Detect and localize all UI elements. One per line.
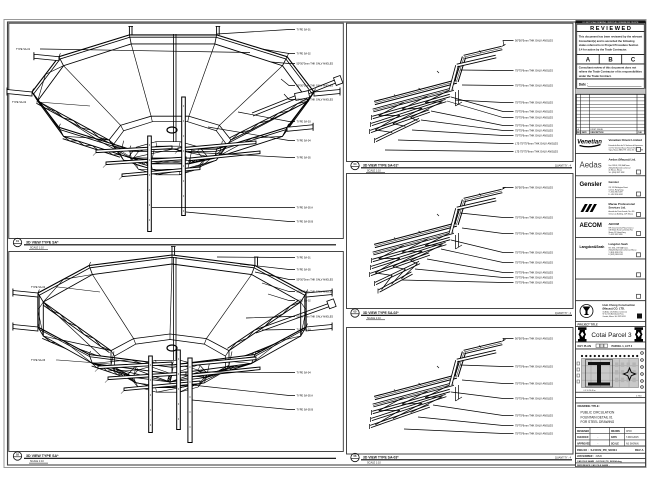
svg-text:C: C bbox=[631, 58, 636, 64]
svg-text:AECOM: AECOM bbox=[580, 223, 602, 229]
svg-text:75*75*6mm THK GALV ANGLES: 75*75*6mm THK GALV ANGLES bbox=[515, 101, 553, 105]
svg-text:FOUNTAIN DETAIL 01: FOUNTAIN DETAIL 01 bbox=[581, 415, 613, 419]
svg-text:75*75*6mm THK GALV ANGLES: 75*75*6mm THK GALV ANGLES bbox=[515, 251, 553, 255]
svg-text:JOB NUMBER :: JOB NUMBER : bbox=[577, 456, 594, 458]
svg-text:Langdon&Seah: Langdon&Seah bbox=[580, 245, 605, 249]
svg-text:F: +852 2810 6992: F: +852 2810 6992 bbox=[609, 194, 623, 196]
svg-text:KEY PLAN: KEY PLAN bbox=[578, 344, 592, 348]
svg-text:TYPE SA-05 B: TYPE SA-05 B bbox=[297, 221, 314, 224]
svg-text:(Macau) CO. LTD.: (Macau) CO. LTD. bbox=[603, 307, 625, 311]
svg-text:75*75*6mm THK GALV ANGLES: 75*75*6mm THK GALV ANGLES bbox=[515, 84, 553, 88]
svg-text:DWG NO :: DWG NO : bbox=[577, 449, 589, 452]
svg-text:75*75*6mm THK GALV ANGLES: 75*75*6mm THK GALV ANGLES bbox=[515, 281, 553, 285]
svg-text:50*50*5mm THK GALV ANGLES: 50*50*5mm THK GALV ANGLES bbox=[297, 85, 334, 88]
svg-text:75*75*6mm THK GALV ANGLES: 75*75*6mm THK GALV ANGLES bbox=[515, 232, 553, 236]
svg-text:QUANTITY : 4: QUANTITY : 4 bbox=[555, 312, 572, 315]
svg-text:T: +852 3922 9000: T: +852 3922 9000 bbox=[609, 234, 623, 236]
svg-text:3D VIEW TYPE SA*: 3D VIEW TYPE SA* bbox=[26, 454, 59, 458]
svg-text:75*75*6mm THK GALV ANGLES: 75*75*6mm THK GALV ANGLES bbox=[515, 129, 553, 133]
svg-text:50*50*5mm THK GALV ANGLES: 50*50*5mm THK GALV ANGLES bbox=[297, 99, 334, 102]
svg-text:PARCEL 1, LOT 2: PARCEL 1, LOT 2 bbox=[612, 345, 633, 348]
svg-text:31520: 31520 bbox=[596, 456, 603, 458]
svg-text:75*75*6mm THK GALV ANGLES: 75*75*6mm THK GALV ANGLES bbox=[515, 110, 553, 114]
svg-text:TYPE SA-05: TYPE SA-05 bbox=[297, 157, 312, 160]
svg-text:75*75*6mm THK GALV ANGLES: 75*75*6mm THK GALV ANGLES bbox=[515, 365, 553, 369]
svg-text:R E V I E W E D: R E V I E W E D bbox=[590, 26, 631, 32]
svg-text:TYPE SA-02: TYPE SA-02 bbox=[297, 300, 312, 303]
svg-text:Aedas (Macau) Ltd.: Aedas (Macau) Ltd. bbox=[609, 158, 637, 162]
svg-text:0 5 10 20 40: 0 5 10 20 40 m bbox=[584, 390, 596, 392]
svg-text:DRAWN: DRAWN bbox=[611, 430, 620, 433]
svg-text:DATE: DATE bbox=[611, 436, 618, 439]
svg-text:relieve the Trade Contractor o: relieve the Trade Contractor of its resp… bbox=[579, 70, 643, 74]
svg-text:TYPE SA-04: TYPE SA-04 bbox=[297, 140, 312, 143]
svg-text:China Law Building, 21/F, Maca: China Law Building, 21/F, Macau bbox=[609, 213, 634, 215]
svg-text:50*50*5mm THK GALV ANGLES: 50*50*5mm THK GALV ANGLES bbox=[297, 316, 334, 319]
svg-text:TYPE SA-03: TYPE SA-03 bbox=[297, 329, 312, 332]
svg-text:REFERENCE CAD FILE NAME :: REFERENCE CAD FILE NAME : bbox=[577, 464, 610, 467]
svg-text:CHIO: CHIO bbox=[626, 431, 632, 433]
svg-text:3D VIEW TYPE SA-03*: 3D VIEW TYPE SA-03* bbox=[363, 455, 399, 459]
svg-text:50*50*5mm THK GALV ANGLES: 50*50*5mm THK GALV ANGLES bbox=[515, 337, 553, 341]
svg-text:Date :: Date : bbox=[579, 83, 588, 87]
svg-text:Hsin Chong Construction: Hsin Chong Construction bbox=[603, 303, 636, 307]
svg-text:75*75*6mm THK GALV ANGLES: 75*75*6mm THK GALV ANGLES bbox=[515, 261, 553, 265]
svg-text:QUANTITY : 4: QUANTITY : 4 bbox=[555, 164, 572, 167]
svg-text:75*75*6mm THK GALV ANGLES: 75*75*6mm THK GALV ANGLES bbox=[515, 424, 553, 428]
svg-text:Aedas: Aedas bbox=[580, 161, 602, 170]
svg-text:SCALE 1:10: SCALE 1:10 bbox=[367, 461, 381, 464]
svg-text:Grande, Macau Tel: 2878 6131: Grande, Macau Tel: 2878 6131 bbox=[603, 315, 626, 318]
svg-text:SCALE 1:10: SCALE 1:10 bbox=[367, 317, 381, 320]
svg-text:50*50*5mm THK GALV ANGLES: 50*50*5mm THK GALV ANGLES bbox=[297, 279, 334, 282]
svg-text:75*75*6mm THK GALV ANGLES: 75*75*6mm THK GALV ANGLES bbox=[515, 116, 553, 120]
svg-text:75*75*6mm THK GALV ANGLES: 75*75*6mm THK GALV ANGLES bbox=[515, 69, 553, 73]
svg-text:TYPE SA-03: TYPE SA-03 bbox=[297, 121, 312, 124]
svg-text:under the Trade Contract.: under the Trade Contract. bbox=[579, 74, 612, 78]
svg-text:APPROVED: APPROVED bbox=[577, 442, 590, 445]
svg-text:75*75*6mm THK GALV ANGLES: 75*75*6mm THK GALV ANGLES bbox=[515, 382, 553, 386]
svg-text:TYPE SA-05 A: TYPE SA-05 A bbox=[297, 395, 314, 398]
svg-text:TYPE SA-05 A: TYPE SA-05 A bbox=[297, 207, 314, 210]
svg-text:L75 75*75*6mm THK GALV ANGLES: L75 75*75*6mm THK GALV ANGLES bbox=[515, 150, 558, 154]
svg-text:status referred to in Projec: status referred to in Project Procedure … bbox=[579, 43, 639, 47]
svg-text:DATE: DATE bbox=[582, 131, 588, 134]
svg-text:Gensler: Gensler bbox=[580, 182, 603, 188]
svg-text:TYPE SA-05 B: TYPE SA-05 B bbox=[297, 409, 314, 412]
svg-text:PUBLIC CIRCULATION: PUBLIC CIRCULATION bbox=[581, 411, 615, 415]
svg-text:DESIGNED: DESIGNED bbox=[577, 431, 589, 433]
svg-text:3D VIEW TYPE SA-02*: 3D VIEW TYPE SA-02* bbox=[363, 311, 399, 315]
svg-text:Consultant(s) and is accorded: Consultant(s) and is accorded the follow… bbox=[579, 39, 635, 43]
svg-text:B: B bbox=[608, 58, 613, 64]
svg-text:L75 75*75*6mm THK GALV ANGLES: L75 75*75*6mm THK GALV ANGLES bbox=[515, 142, 558, 146]
svg-text:TYPE SA-01: TYPE SA-01 bbox=[16, 48, 31, 51]
svg-text:FOR STEEL DRAWING: FOR STEEL DRAWING bbox=[581, 420, 615, 424]
svg-text:75*75*6mm THK GALV ANGLES: 75*75*6mm THK GALV ANGLES bbox=[515, 414, 553, 418]
svg-text:F: (853) 2833 1532: F: (853) 2833 1532 bbox=[609, 254, 623, 256]
svg-text:S-FOUN_PD_SK004: S-FOUN_PD_SK004 bbox=[591, 448, 618, 452]
svg-text:7-MAY-2015: 7-MAY-2015 bbox=[626, 436, 639, 439]
svg-text:Gensler: Gensler bbox=[609, 180, 620, 184]
svg-text:CAD FILE NAME : S-FOUN_PD_SK: CAD FILE NAME : S-FOUN_PD_SK004.dwg bbox=[577, 460, 622, 463]
svg-text:TYPE SA-01: TYPE SA-01 bbox=[297, 29, 312, 32]
svg-text:TYPE SA-02: TYPE SA-02 bbox=[12, 101, 27, 104]
svg-text:CHECKED: CHECKED bbox=[577, 437, 589, 439]
svg-text:Tel : (853) 2872 3282: Tel : (853) 2872 3282 bbox=[609, 172, 625, 174]
svg-text:Consultant review of this docu: Consultant review of this document does … bbox=[579, 66, 637, 70]
svg-text:1:750: 1:750 bbox=[636, 395, 642, 397]
svg-text:SCALE 1:10: SCALE 1:10 bbox=[367, 169, 381, 172]
svg-text:REV A: REV A bbox=[635, 448, 643, 452]
svg-text:QUANTITY : 4: QUANTITY : 4 bbox=[555, 456, 572, 459]
svg-text:SCALE 1:10: SCALE 1:10 bbox=[30, 247, 44, 250]
svg-text:75*75*6mm THK GALV ANGLES: 75*75*6mm THK GALV ANGLES bbox=[515, 124, 553, 128]
svg-text:3D VIEW TYPE SA*: 3D VIEW TYPE SA* bbox=[26, 240, 59, 244]
svg-text:50*50*5mm THK GALV ANGLES: 50*50*5mm THK GALV ANGLES bbox=[297, 63, 334, 66]
svg-text:DO NOT SCALE DRAWING. VERIFY A: DO NOT SCALE DRAWING. VERIFY ALL DIMENSI… bbox=[583, 21, 640, 24]
svg-text:3D VIEW TYPE SA-01*: 3D VIEW TYPE SA-01* bbox=[363, 163, 399, 167]
svg-text:PROJECT TITLE: PROJECT TITLE bbox=[578, 322, 598, 326]
svg-text:TYPE SA-06: TYPE SA-06 bbox=[31, 359, 46, 362]
svg-text:5.4 for action by the Trade Co: 5.4 for action by the Trade Contractor. bbox=[579, 47, 628, 51]
svg-text:75*75*6mm THK GALV ANGLES: 75*75*6mm THK GALV ANGLES bbox=[515, 134, 553, 138]
svg-text:75*75*6mm THK GALV ANGLES: 75*75*6mm THK GALV ANGLES bbox=[515, 397, 553, 401]
svg-text:A: A bbox=[586, 58, 591, 64]
svg-text:AS SHOWN: AS SHOWN bbox=[626, 442, 639, 445]
svg-text:75*75*6mm THK GALV ANGLES: 75*75*6mm THK GALV ANGLES bbox=[515, 271, 553, 275]
svg-text:Langdon Seah: Langdon Seah bbox=[609, 242, 629, 246]
svg-text:This document has been reviewe: This document has been reviewed by the r… bbox=[579, 35, 643, 39]
svg-text:TYPE SA-02: TYPE SA-02 bbox=[297, 53, 312, 56]
svg-text:Venetian Orient Limited: Venetian Orient Limited bbox=[609, 138, 643, 142]
svg-text:SCALE 1:10: SCALE 1:10 bbox=[30, 460, 44, 463]
svg-text:TYPE SA-02: TYPE SA-02 bbox=[31, 286, 46, 289]
svg-text:TYPE SA-01: TYPE SA-01 bbox=[297, 257, 312, 260]
svg-text:TYPE SA-04: TYPE SA-04 bbox=[297, 372, 312, 375]
svg-text:TYPE SA-05: TYPE SA-05 bbox=[297, 269, 312, 272]
svg-text:AECOM: AECOM bbox=[609, 222, 620, 226]
svg-text:Services Ltd.: Services Ltd. bbox=[609, 205, 627, 209]
svg-text:SCALE: SCALE bbox=[611, 442, 619, 445]
svg-text:Cotai Parcel 3: Cotai Parcel 3 bbox=[591, 332, 632, 339]
svg-text:50*50*5mm THK GALV ANGLES: 50*50*5mm THK GALV ANGLES bbox=[515, 39, 553, 43]
svg-text:50*50*5mm THK GALV ANGLES: 50*50*5mm THK GALV ANGLES bbox=[297, 291, 334, 294]
svg-text:75*75*6mm THK GALV ANGLES: 75*75*6mm THK GALV ANGLES bbox=[515, 276, 553, 280]
svg-text:75*75*6mm THK GALV ANGLES: 75*75*6mm THK GALV ANGLES bbox=[515, 432, 553, 436]
svg-text:50*50*5mm THK GALV ANGLES: 50*50*5mm THK GALV ANGLES bbox=[515, 186, 553, 190]
svg-text:FIRST ISSUE: FIRST ISSUE bbox=[591, 129, 604, 131]
svg-text:75*75*6mm THK GALV ANGLES: 75*75*6mm THK GALV ANGLES bbox=[515, 216, 553, 220]
svg-text:DRAWING TITLE:: DRAWING TITLE: bbox=[578, 404, 600, 408]
